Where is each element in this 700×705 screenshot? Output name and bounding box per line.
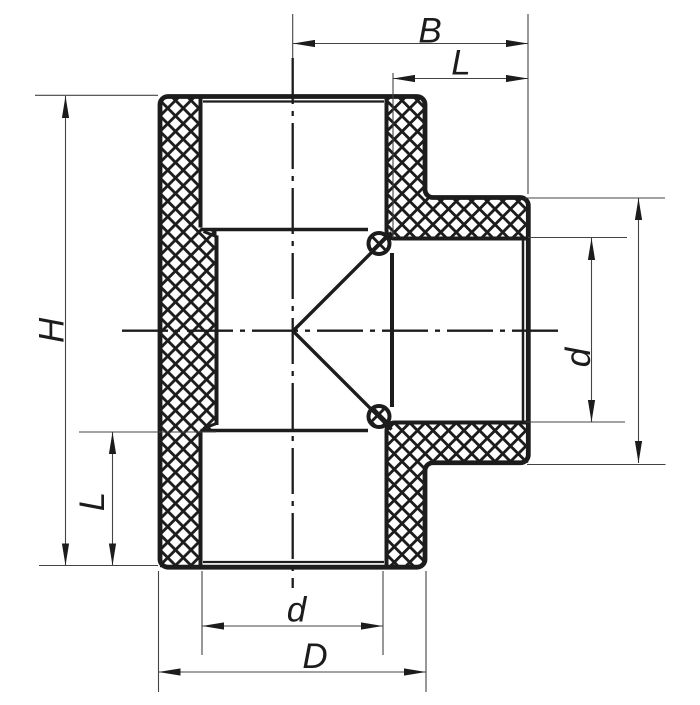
svg-text:d: d xyxy=(287,591,308,630)
svg-text:D: D xyxy=(302,637,327,676)
svg-text:H: H xyxy=(33,317,72,343)
svg-text:L: L xyxy=(73,492,112,511)
svg-text:d: d xyxy=(559,346,598,367)
svg-text:L: L xyxy=(451,44,470,83)
svg-text:B: B xyxy=(418,12,441,51)
